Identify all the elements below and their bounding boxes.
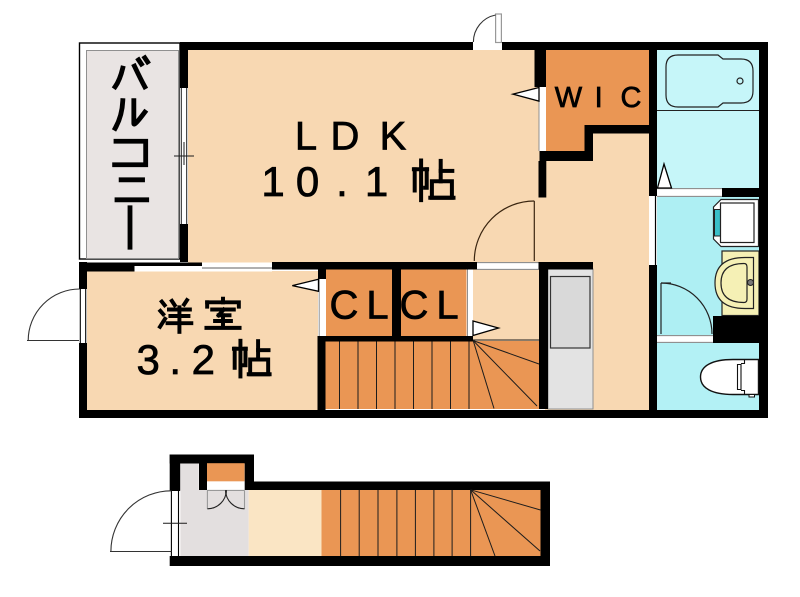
svg-text:3: 3: [137, 336, 160, 383]
svg-text:1: 1: [365, 158, 388, 205]
svg-text:.: .: [336, 158, 348, 205]
svg-text:D: D: [331, 115, 360, 159]
svg-text:C: C: [621, 82, 642, 114]
svg-text:I: I: [595, 82, 603, 114]
svg-text:L: L: [295, 115, 317, 159]
svg-text:C: C: [400, 283, 429, 327]
svg-text:.: .: [169, 336, 181, 383]
svg-text:K: K: [380, 115, 407, 159]
svg-text:L: L: [436, 283, 458, 327]
svg-text:2: 2: [192, 336, 215, 383]
svg-text:L: L: [366, 283, 388, 327]
svg-text:0: 0: [296, 158, 319, 205]
svg-text:1: 1: [261, 158, 284, 205]
svg-text:C: C: [330, 283, 359, 327]
svg-text:W: W: [555, 82, 583, 114]
